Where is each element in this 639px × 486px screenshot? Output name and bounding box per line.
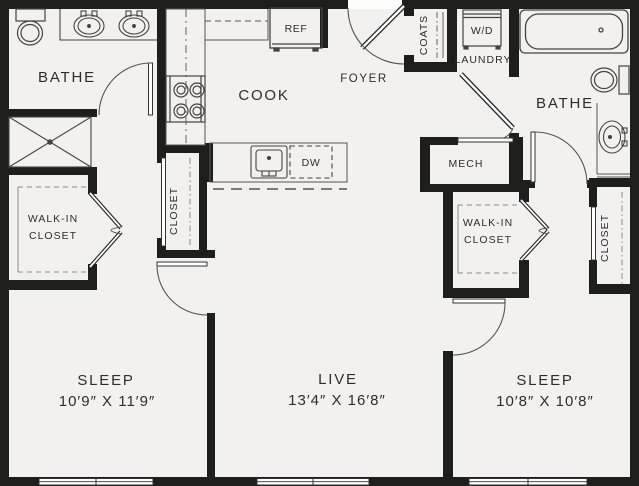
room-label-cook: COOK (238, 87, 289, 104)
room-label-bedroom-closet: CLOSET (599, 214, 611, 262)
room-label-bath2: BATHE (536, 95, 594, 112)
window (257, 479, 369, 486)
windows (39, 479, 587, 486)
room-dims-sleep2: 10′8″ X 10′8″ (496, 393, 594, 410)
room-label-walkin-left-2: CLOSET (29, 230, 77, 242)
floor-plan-drawing: BATHE COOK FOYER COATS W/D LAUNDRY BATHE… (0, 0, 639, 486)
room-label-mech: MECH (449, 158, 484, 170)
room-label-bath1: BATHE (38, 69, 96, 86)
room-label-walkin-right-1: WALK-IN (463, 217, 513, 229)
room-label-walkin-right-2: CLOSET (464, 234, 512, 246)
washer-dryer-label: W/D (471, 25, 493, 37)
room-dims-sleep1: 10′9″ X 11′9″ (59, 393, 156, 410)
room-label-foyer: FOYER (340, 73, 388, 85)
room-label-walkin-left-1: WALK-IN (28, 213, 78, 225)
floor-plan: BATHE COOK FOYER COATS W/D LAUNDRY BATHE… (0, 0, 639, 486)
window (39, 479, 153, 486)
dishwasher-label: DW (302, 157, 321, 169)
room-label-hall-closet: CLOSET (168, 187, 180, 235)
room-label-coats: COATS (418, 15, 430, 55)
room-label-sleep2: SLEEP (516, 372, 573, 389)
room-label-live: LIVE (318, 371, 358, 388)
room-dims-live: 13′4″ X 16′8″ (288, 392, 386, 409)
mech-door (458, 138, 513, 142)
room-label-sleep1: SLEEP (77, 372, 134, 389)
window (469, 479, 587, 486)
refrigerator-label: REF (285, 23, 308, 35)
room-label-laundry: LAUNDRY (455, 54, 512, 66)
